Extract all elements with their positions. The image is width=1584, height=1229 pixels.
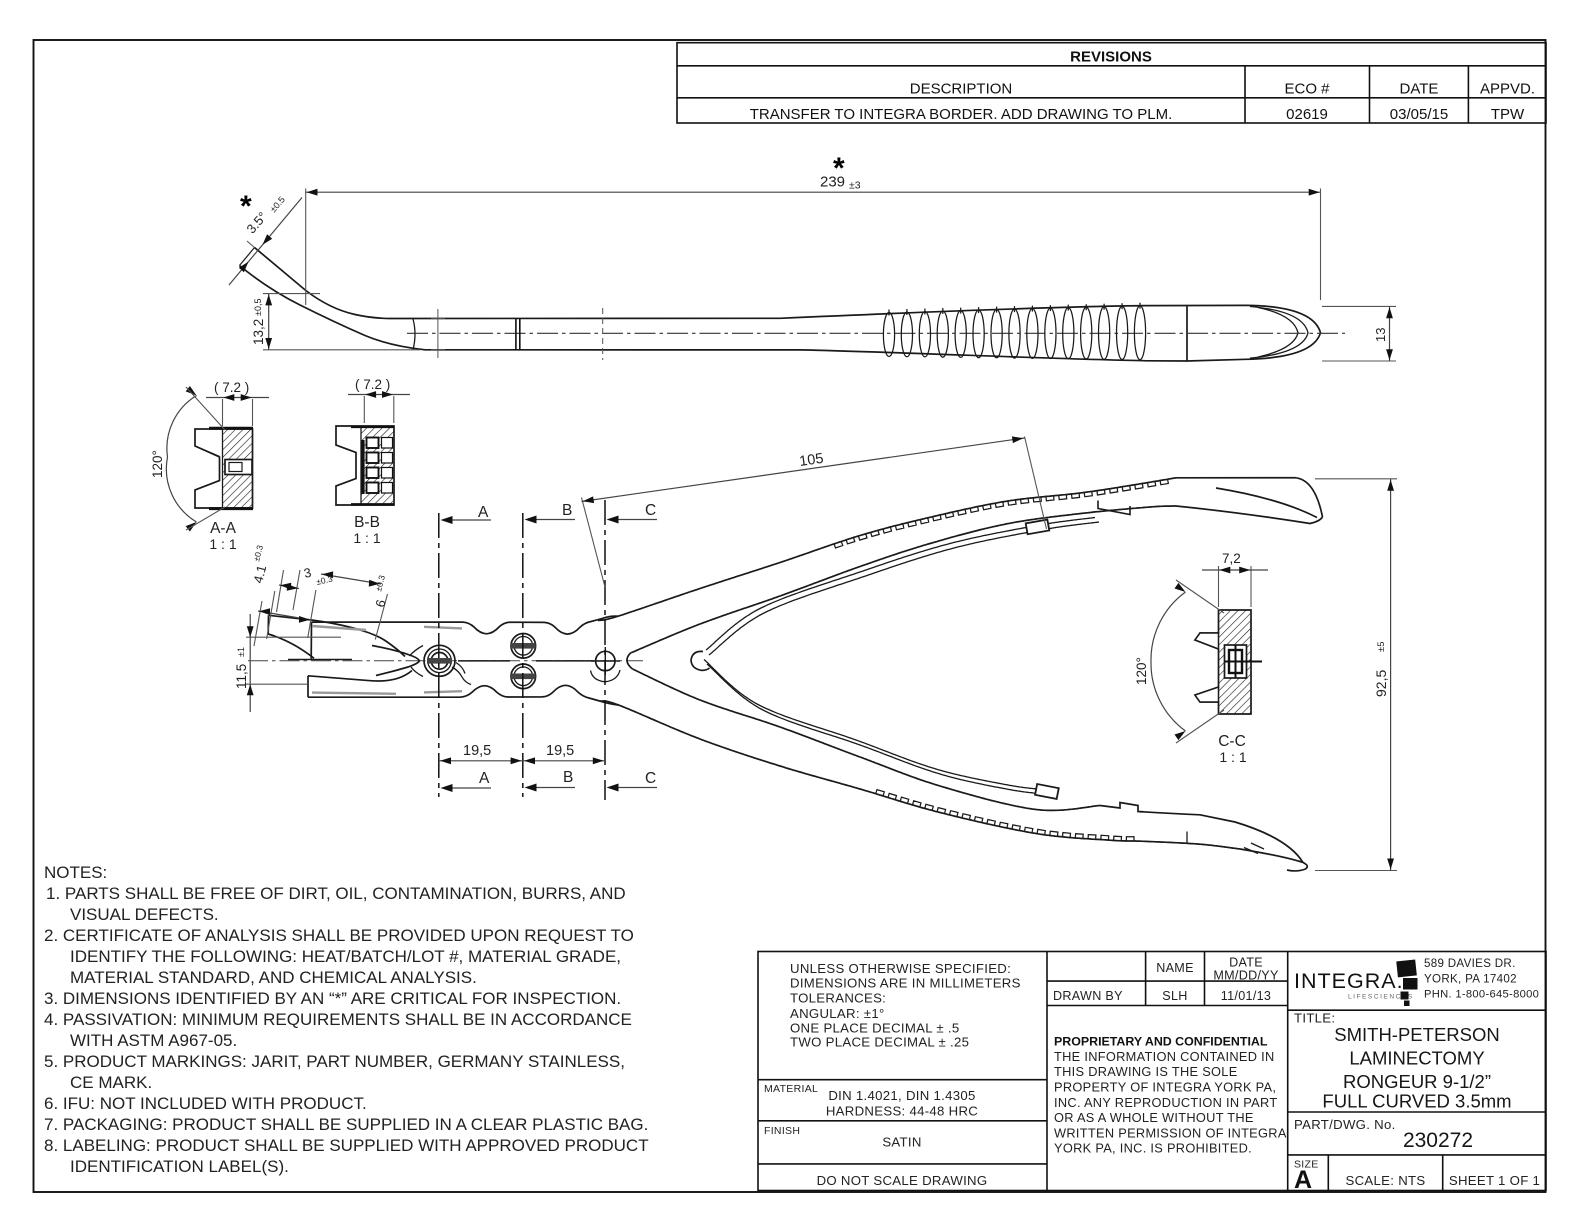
svg-text:TPW: TPW (1491, 106, 1525, 123)
svg-text:THIS DRAWING IS THE SOLE: THIS DRAWING IS THE SOLE (1054, 1064, 1238, 1079)
svg-text:TITLE:: TITLE: (1294, 1011, 1335, 1026)
svg-text:DO NOT SCALE DRAWING: DO NOT SCALE DRAWING (817, 1173, 988, 1188)
svg-text:19,5: 19,5 (546, 743, 574, 759)
svg-text:1. PARTS SHALL BE FREE OF DIR: 1. PARTS SHALL BE FREE OF DIRT, OIL, CON… (46, 884, 626, 903)
svg-text:LAMINECTOMY: LAMINECTOMY (1349, 1048, 1484, 1069)
svg-text:8. LABELING: PRODUCT SHALL BE: 8. LABELING: PRODUCT SHALL BE SUPPLIED W… (44, 1136, 649, 1155)
svg-text:A: A (478, 504, 489, 521)
svg-text:1 : 1: 1 : 1 (209, 536, 236, 552)
svg-text:WITH ASTM A967-05.: WITH ASTM A967-05. (70, 1031, 237, 1050)
svg-text:*: * (833, 152, 845, 185)
svg-text:13: 13 (1373, 328, 1388, 342)
svg-text:C: C (645, 770, 656, 787)
svg-text:19,5: 19,5 (463, 743, 491, 759)
svg-text:TRANSFER TO INTEGRA BORDER. AD: TRANSFER TO INTEGRA BORDER. ADD DRAWING … (750, 106, 1173, 123)
svg-text:7,2: 7,2 (1222, 551, 1241, 566)
svg-text:MATERIAL STANDARD, AND CHEMICA: MATERIAL STANDARD, AND CHEMICAL ANALYSIS… (70, 968, 477, 987)
svg-text:A-A: A-A (210, 520, 237, 537)
svg-text:6. IFU: NOT INCLUDED WITH PRO: 6. IFU: NOT INCLUDED WITH PRODUCT. (44, 1094, 367, 1113)
svg-text:11,5: 11,5 (234, 664, 249, 689)
svg-text:NOTES:: NOTES: (44, 863, 107, 882)
svg-text:DATE: DATE (1229, 956, 1263, 970)
svg-text:FULL CURVED 3.5mm: FULL CURVED 3.5mm (1322, 1091, 1511, 1112)
svg-text:92,5: 92,5 (1373, 670, 1389, 697)
svg-text:ANGULAR: ±1°: ANGULAR: ±1° (790, 1006, 885, 1021)
svg-text:IDENTIFY THE FOLLOWING: HEAT/B: IDENTIFY THE FOLLOWING: HEAT/BATCH/LOT #… (70, 947, 621, 966)
svg-text:3. DIMENSIONS IDENTIFIED BY A: 3. DIMENSIONS IDENTIFIED BY AN “*” ARE C… (44, 989, 621, 1008)
svg-text:REVISIONS: REVISIONS (1070, 49, 1152, 66)
svg-text:SATIN: SATIN (882, 1135, 921, 1150)
svg-text:120°: 120° (1134, 657, 1149, 685)
svg-text:*: * (240, 190, 252, 223)
svg-text:MATERIAL: MATERIAL (764, 1083, 818, 1095)
svg-text:( 7.2 ): ( 7.2 ) (214, 380, 249, 395)
svg-text:±5: ±5 (1376, 642, 1387, 653)
svg-text:1 : 1: 1 : 1 (1219, 749, 1246, 765)
svg-text:7. PACKAGING: PRODUCT SHALL B: 7. PACKAGING: PRODUCT SHALL BE SUPPLIED … (44, 1115, 648, 1134)
svg-text:B: B (562, 502, 572, 519)
svg-text:DRAWN BY: DRAWN BY (1053, 989, 1123, 1003)
svg-text:11/01/13: 11/01/13 (1221, 989, 1272, 1003)
svg-text:MM/DD/YY: MM/DD/YY (1213, 969, 1279, 983)
svg-text:UNLESS OTHERWISE SPECIFIED:: UNLESS OTHERWISE SPECIFIED: (790, 961, 1011, 976)
svg-text:SHEET 1 OF 1: SHEET 1 OF 1 (1449, 1173, 1540, 1188)
svg-text:±0,5: ±0,5 (253, 299, 263, 316)
svg-text:B: B (563, 769, 573, 786)
svg-text:ECO #: ECO # (1284, 81, 1330, 98)
svg-text:1 : 1: 1 : 1 (353, 530, 380, 546)
svg-text:CE MARK.: CE MARK. (70, 1073, 152, 1092)
svg-text:230272: 230272 (1403, 1129, 1473, 1152)
svg-text:589 DAVIES DR.: 589 DAVIES DR. (1424, 957, 1516, 970)
svg-text:OR AS A WHOLE WITHOUT THE: OR AS A WHOLE WITHOUT THE (1054, 1110, 1254, 1125)
svg-text:SMITH-PETERSON: SMITH-PETERSON (1334, 1024, 1499, 1045)
svg-text:120°: 120° (150, 450, 165, 478)
svg-text:5. PRODUCT MARKINGS: JARIT, P: 5. PRODUCT MARKINGS: JARIT, PART NUMBER,… (44, 1052, 625, 1071)
svg-text:YORK, PA 17402: YORK, PA 17402 (1424, 973, 1517, 986)
svg-text:TOLERANCES:: TOLERANCES: (790, 991, 886, 1006)
svg-text:SLH: SLH (1162, 989, 1187, 1003)
svg-text:( 7.2 ): ( 7.2 ) (355, 377, 390, 392)
svg-text:RONGEUR 9-1/2”: RONGEUR 9-1/2” (1343, 1071, 1491, 1092)
svg-text:INTEGRA.: INTEGRA. (1294, 969, 1404, 993)
svg-text:DESCRIPTION: DESCRIPTION (910, 81, 1013, 98)
svg-text:TWO PLACE DECIMAL ± .25: TWO PLACE DECIMAL ± .25 (790, 1035, 969, 1050)
svg-text:DIMENSIONS ARE IN MILLIMETERS: DIMENSIONS ARE IN MILLIMETERS (790, 976, 1021, 991)
svg-text:105: 105 (798, 451, 824, 470)
svg-text:DATE: DATE (1400, 81, 1439, 98)
svg-text:A: A (1294, 1166, 1312, 1194)
svg-text:4. PASSIVATION: MINIMUM REQUI: 4. PASSIVATION: MINIMUM REQUIREMENTS SHA… (44, 1010, 632, 1029)
svg-text:PROPRIETARY AND CONFIDENTIAL: PROPRIETARY AND CONFIDENTIAL (1054, 1035, 1268, 1049)
svg-text:2. CERTIFICATE OF ANALYSIS SH: 2. CERTIFICATE OF ANALYSIS SHALL BE PROV… (44, 926, 634, 945)
svg-text:A: A (479, 770, 490, 787)
svg-text:PHN. 1-800-645-8000: PHN. 1-800-645-8000 (1424, 989, 1539, 1001)
svg-text:APPVD.: APPVD. (1480, 81, 1535, 98)
svg-text:FINISH: FINISH (764, 1125, 800, 1137)
svg-text:NAME: NAME (1156, 961, 1194, 975)
svg-text:13,2: 13,2 (251, 319, 266, 345)
svg-text:YORK PA, INC. IS PROHIBITED.: YORK PA, INC. IS PROHIBITED. (1054, 1141, 1252, 1156)
svg-text:B-B: B-B (354, 514, 380, 531)
svg-text:IDENTIFICATION LABEL(S).: IDENTIFICATION LABEL(S). (70, 1157, 289, 1176)
svg-text:ONE PLACE DECIMAL ± .5: ONE PLACE DECIMAL ± .5 (790, 1021, 959, 1036)
svg-text:VISUAL DEFECTS.: VISUAL DEFECTS. (70, 905, 219, 924)
svg-text:±3: ±3 (849, 180, 861, 192)
svg-text:WRITTEN PERMISSION OF INTEGRA: WRITTEN PERMISSION OF INTEGRA (1054, 1125, 1287, 1140)
svg-text:PART/DWG. No.: PART/DWG. No. (1294, 1117, 1396, 1132)
svg-text:03/05/15: 03/05/15 (1390, 106, 1448, 123)
svg-text:HARDNESS: 44-48 HRC: HARDNESS: 44-48 HRC (826, 1104, 978, 1119)
svg-text:C-C: C-C (1218, 733, 1246, 750)
svg-text:02619: 02619 (1286, 106, 1328, 123)
svg-text:DIN 1.4021, DIN 1.4305: DIN 1.4021, DIN 1.4305 (828, 1088, 975, 1103)
svg-text:±1: ±1 (236, 647, 246, 657)
svg-text:SCALE: NTS: SCALE: NTS (1346, 1173, 1426, 1188)
svg-text:THE INFORMATION CONTAINED IN: THE INFORMATION CONTAINED IN (1054, 1049, 1275, 1064)
svg-text:PROPERTY OF INTEGRA YORK PA,: PROPERTY OF INTEGRA YORK PA, (1054, 1080, 1276, 1095)
svg-text:INC. ANY REPRODUCTION IN PART: INC. ANY REPRODUCTION IN PART (1054, 1095, 1277, 1110)
svg-text:C: C (645, 502, 656, 519)
